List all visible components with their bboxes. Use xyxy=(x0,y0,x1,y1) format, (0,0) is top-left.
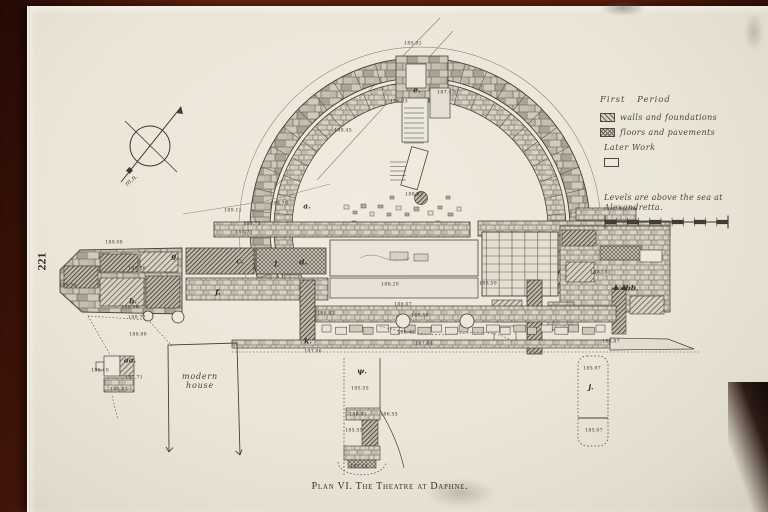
walls-label: walls and foundations xyxy=(620,113,717,122)
legend-levels-note: Levels are above the sea at Alexandretta… xyxy=(604,193,768,213)
plate-caption: Plan VI. The Theatre at Daphne. xyxy=(290,481,490,492)
modern-house-label: modern house xyxy=(167,372,233,390)
levels-note-line2: Alexandretta. xyxy=(604,203,768,213)
orchestra-debris xyxy=(344,196,461,226)
photo-of-plate: { "page_number": "221", "caption": "Plan… xyxy=(0,0,768,512)
south-trench xyxy=(338,358,404,476)
modern-house-outline xyxy=(166,343,242,455)
southwest-structure xyxy=(96,356,134,420)
later-work-swatch xyxy=(604,158,619,167)
apex-structure xyxy=(390,56,450,205)
page-number: 221 xyxy=(35,253,50,271)
walls-hatch-swatch xyxy=(600,113,615,122)
legend-walls-row: walls and foundations xyxy=(600,113,768,122)
stage-front xyxy=(143,306,616,344)
compass-rose xyxy=(121,106,183,182)
floors-crosshatch-swatch xyxy=(600,128,615,137)
legend-floors-row: floors and pavements xyxy=(600,128,768,137)
legend-first-period-heading: First Period xyxy=(600,95,768,105)
theatre-plan-drawing xyxy=(0,0,768,512)
legend-later-work-heading: Later Work xyxy=(604,143,768,152)
floors-label: floors and pavements xyxy=(620,128,715,137)
legend: First Period walls and foundations floor… xyxy=(600,95,768,213)
levels-note-line1: Levels are above the sea at xyxy=(604,193,768,203)
